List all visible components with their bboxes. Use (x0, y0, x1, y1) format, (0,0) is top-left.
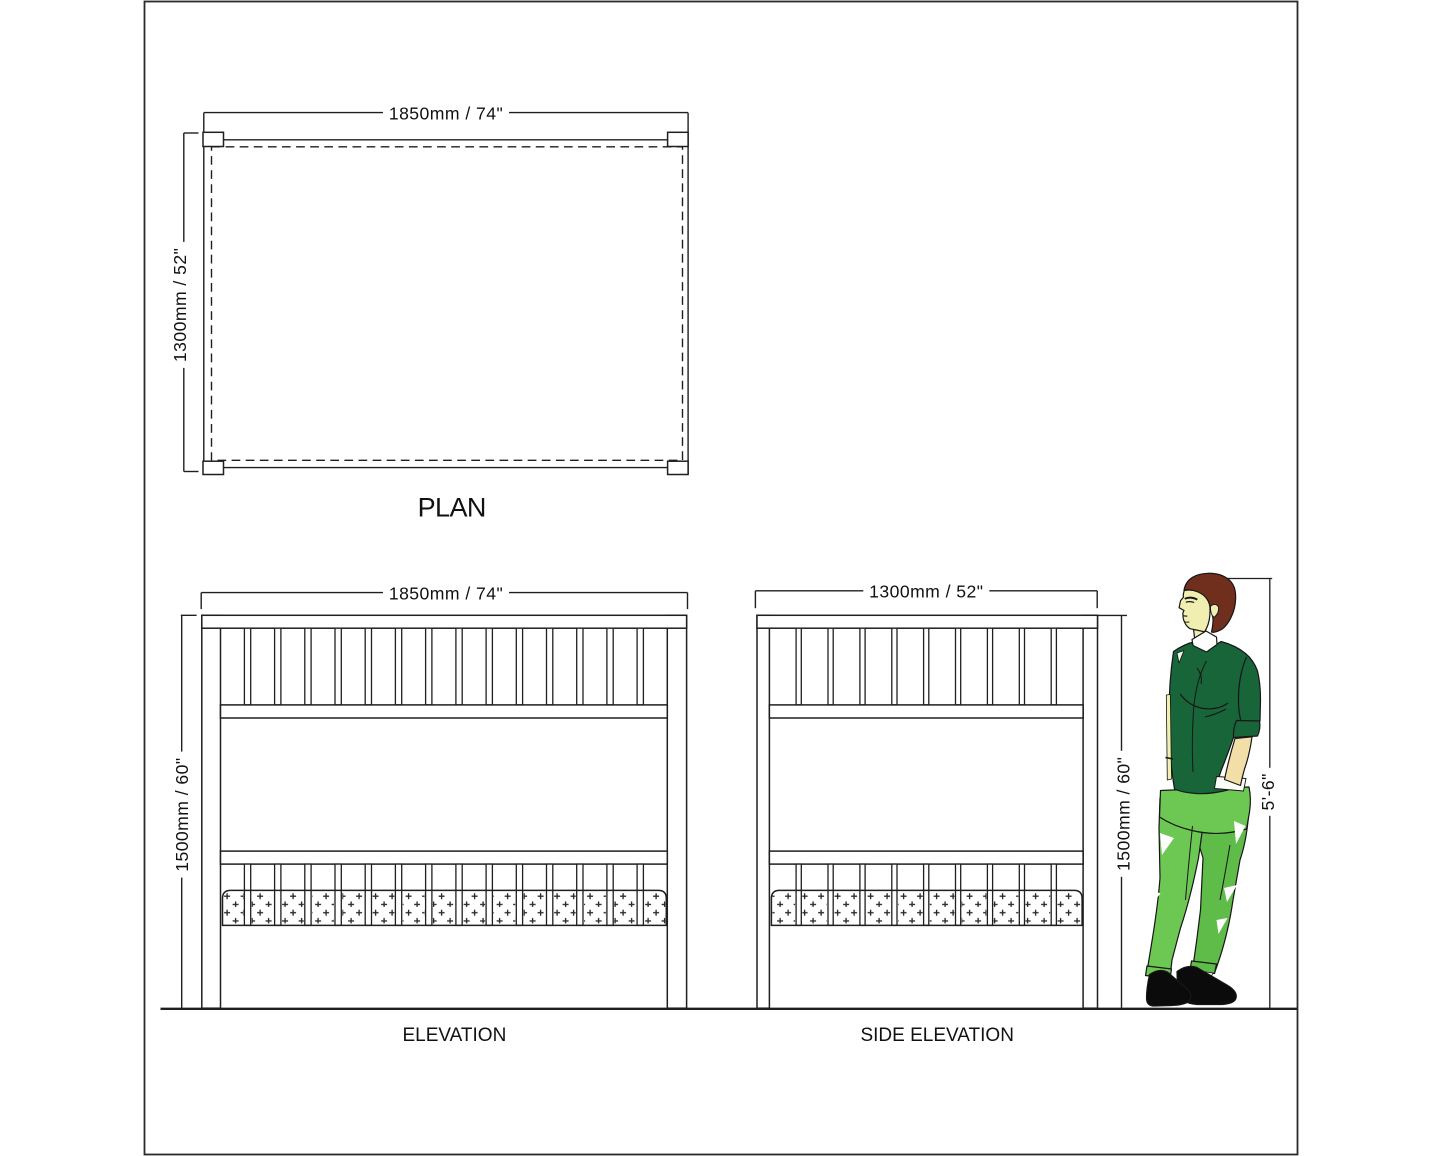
svg-text:SIDE ELEVATION: SIDE ELEVATION (860, 1025, 1013, 1046)
svg-text:1850mm / 74": 1850mm / 74" (389, 104, 503, 124)
svg-text:ELEVATION: ELEVATION (402, 1025, 506, 1046)
svg-text:1850mm / 74": 1850mm / 74" (389, 583, 503, 603)
svg-text:1500mm / 60": 1500mm / 60" (1114, 757, 1134, 871)
svg-text:PLAN: PLAN (418, 493, 486, 523)
svg-text:1300mm / 52": 1300mm / 52" (869, 582, 983, 602)
svg-text:1300mm / 52": 1300mm / 52" (170, 248, 190, 362)
svg-text:5'-6": 5'-6" (1258, 773, 1278, 810)
svg-text:1500mm / 60": 1500mm / 60" (172, 757, 192, 871)
